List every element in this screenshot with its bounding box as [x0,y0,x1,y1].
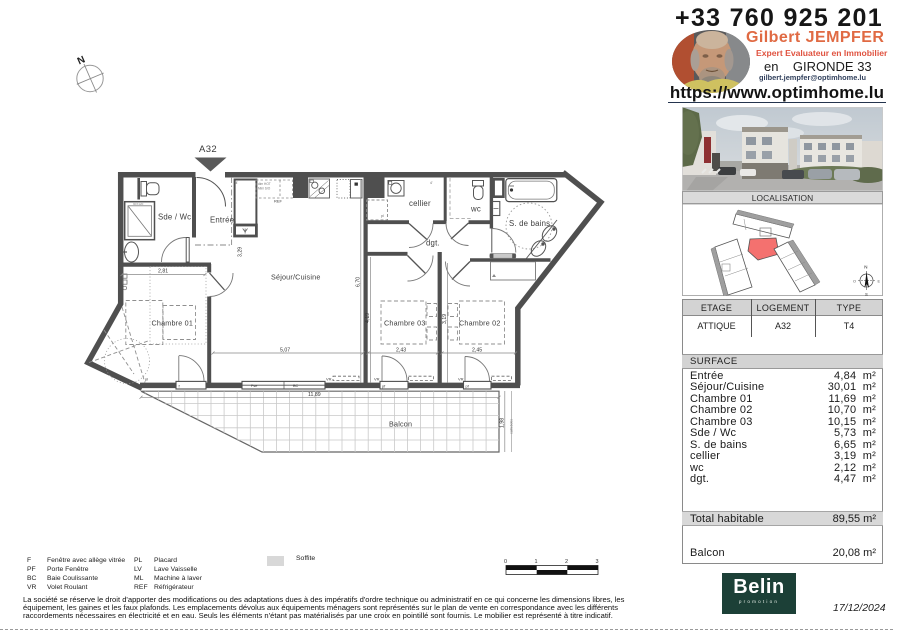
svg-text:pl: pl [145,377,148,382]
svg-text:4,19: 4,19 [365,313,371,323]
svg-text:2,81: 2,81 [158,269,168,275]
svg-text:caillebotis: caillebotis [510,419,514,434]
svg-text:1,98: 1,98 [500,418,506,428]
svg-text:Séjour/Cuisine: Séjour/Cuisine [271,273,321,282]
svg-text:Balcon: Balcon [389,420,412,429]
svg-text:Fse: Fse [251,384,257,388]
svg-text:N: N [76,54,87,67]
svg-text:S: S [865,292,868,296]
svg-text:BC: BC [293,384,299,388]
svg-text:cellier: cellier [409,199,431,208]
svg-text:3,19: 3,19 [442,314,448,324]
svg-text:VR: VR [374,377,380,382]
svg-text:2,45: 2,45 [472,348,482,354]
svg-text:3,29: 3,29 [238,247,244,257]
svg-text:90X120: 90X120 [133,202,144,206]
svg-text:VR: VR [326,377,332,382]
svg-text:REF: REF [274,199,283,204]
svg-text:Chambre 01: Chambre 01 [152,319,194,328]
svg-text:A32: A32 [199,144,217,155]
svg-text:S. de bains: S. de bains [509,219,550,228]
svg-text:O: O [853,280,856,284]
svg-text:Mini S/O: Mini S/O [258,187,271,191]
svg-text:6,70: 6,70 [355,277,361,287]
svg-text:pl: pl [381,214,384,218]
svg-text:dgt.: dgt. [426,239,440,248]
svg-text:wc: wc [470,205,481,214]
svg-text:3: 3 [596,559,599,565]
svg-text:Sde / Wc: Sde / Wc [158,213,191,222]
svg-text:4': 4' [236,181,239,185]
svg-text:1: 1 [535,559,538,565]
svg-text:Entrée.: Entrée. [210,216,237,225]
svg-text:dim HOT: dim HOT [258,182,271,186]
svg-text:2: 2 [565,559,568,565]
svg-text:Chambre 02: Chambre 02 [459,319,501,328]
svg-text:Chambre 03: Chambre 03 [384,319,426,328]
svg-text:5,07: 5,07 [280,348,290,354]
svg-text:4': 4' [430,181,433,185]
svg-text:VR: VR [458,377,464,382]
svg-text:2,43: 2,43 [396,348,406,354]
svg-text:0: 0 [504,559,507,565]
svg-text:11,89: 11,89 [308,392,321,398]
svg-text:N: N [864,265,867,270]
